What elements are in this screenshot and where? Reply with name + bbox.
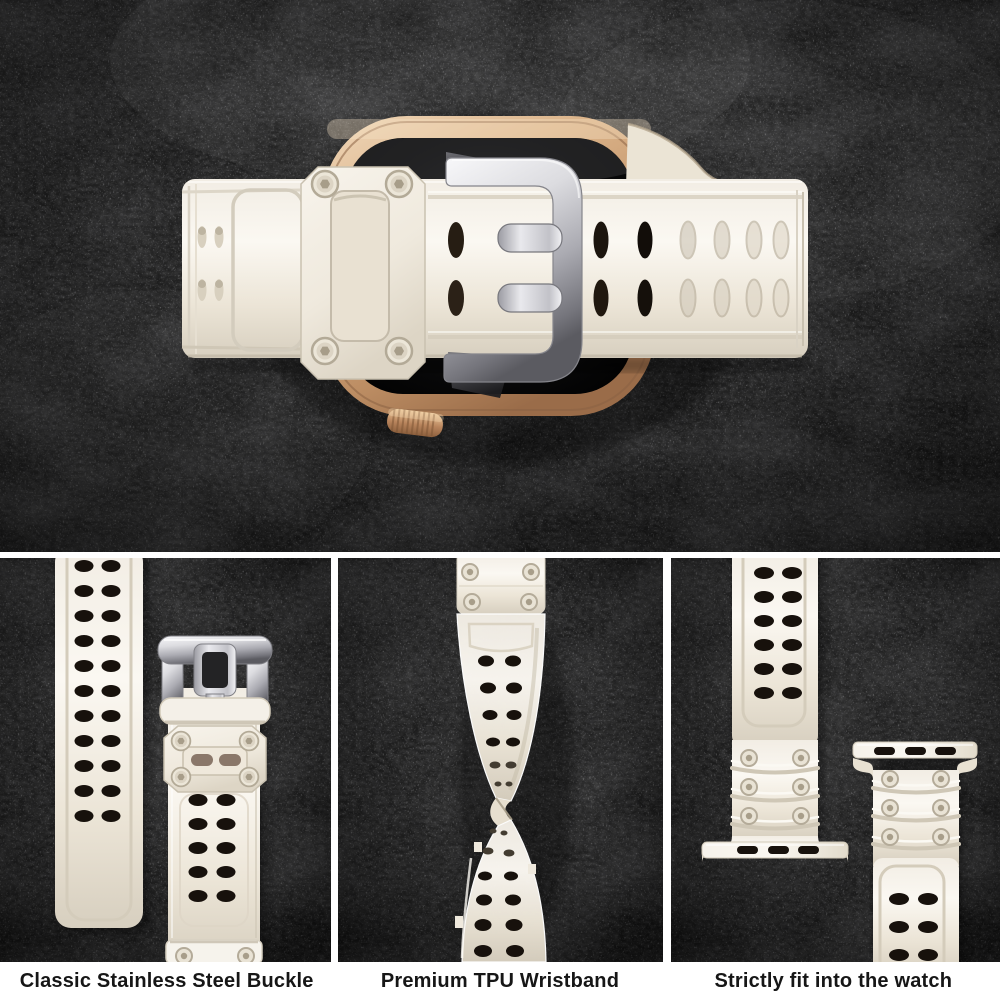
keeper-loop — [164, 726, 266, 792]
strap-tail — [55, 558, 148, 932]
connector — [166, 940, 262, 962]
panel-watch-fit — [671, 558, 1000, 962]
caption-buckle: Classic Stainless Steel Buckle — [0, 970, 333, 993]
caption-wristband: Premium TPU Wristband — [333, 970, 666, 993]
caption-bar: Classic Stainless Steel Buckle Premium T… — [0, 962, 1000, 1000]
buckle-strap — [158, 636, 272, 962]
panel-buckle-closeup — [0, 558, 331, 962]
band-keeper — [301, 167, 425, 379]
buckle-prong — [498, 284, 562, 312]
product-image: Classic Stainless Steel Buckle Premium T… — [0, 0, 1000, 1000]
connector-slots — [874, 747, 956, 755]
connector — [457, 558, 545, 614]
hero-photo — [0, 0, 1000, 552]
buckle-hinge — [160, 698, 270, 724]
panel-wristband-twist — [338, 558, 663, 962]
caption-fit: Strictly fit into the watch — [667, 970, 1000, 993]
buckle-prong — [498, 224, 562, 252]
connector-slots — [737, 846, 819, 854]
buckle-closeup — [158, 636, 272, 724]
